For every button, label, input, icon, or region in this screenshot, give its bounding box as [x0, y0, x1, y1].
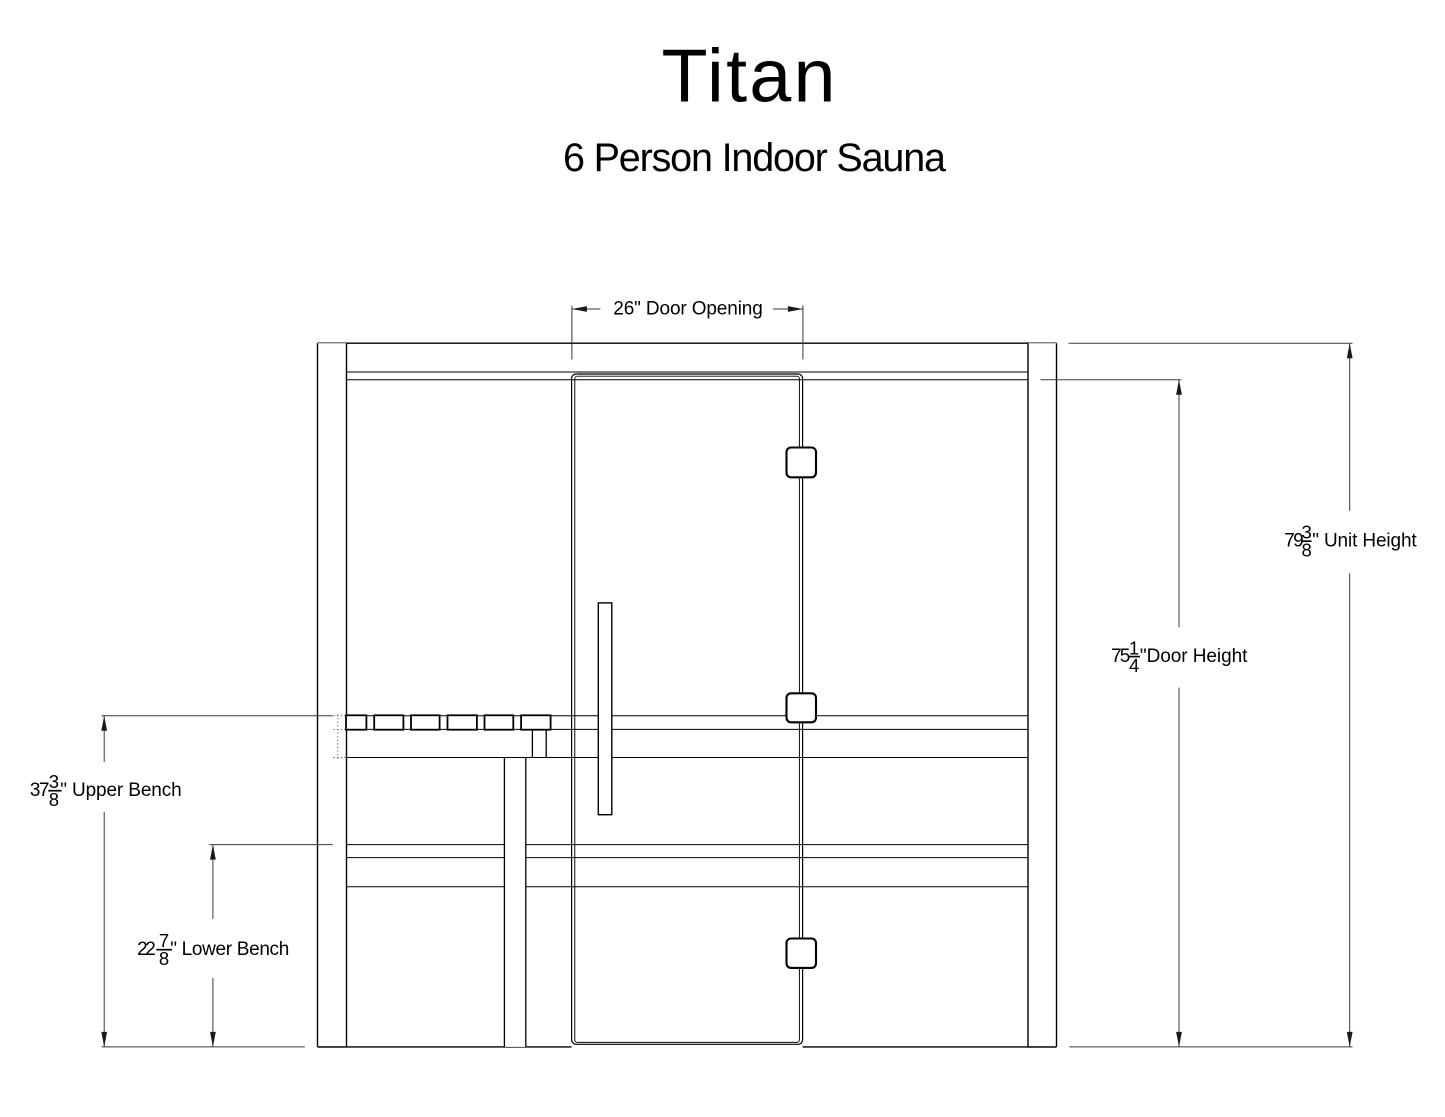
svg-text:8: 8 [159, 948, 169, 969]
svg-text:4: 4 [1129, 655, 1139, 676]
svg-text:22: 22 [137, 939, 156, 960]
svg-text:75: 75 [1111, 646, 1130, 667]
svg-text:" Upper Bench: " Upper Bench [60, 780, 182, 801]
svg-text:6 Person Indoor Sauna: 6 Person Indoor Sauna [563, 136, 946, 180]
svg-text:" Unit Height: " Unit Height [1312, 530, 1417, 551]
svg-text:Titan: Titan [662, 34, 836, 118]
svg-text:"Door Height: "Door Height [1140, 646, 1248, 667]
svg-text:37: 37 [30, 780, 50, 801]
svg-text:8: 8 [49, 789, 59, 810]
svg-text:" Lower Bench: " Lower Bench [170, 939, 289, 960]
svg-text:8: 8 [1302, 540, 1312, 561]
svg-text:26" Door Opening: 26" Door Opening [613, 298, 763, 319]
